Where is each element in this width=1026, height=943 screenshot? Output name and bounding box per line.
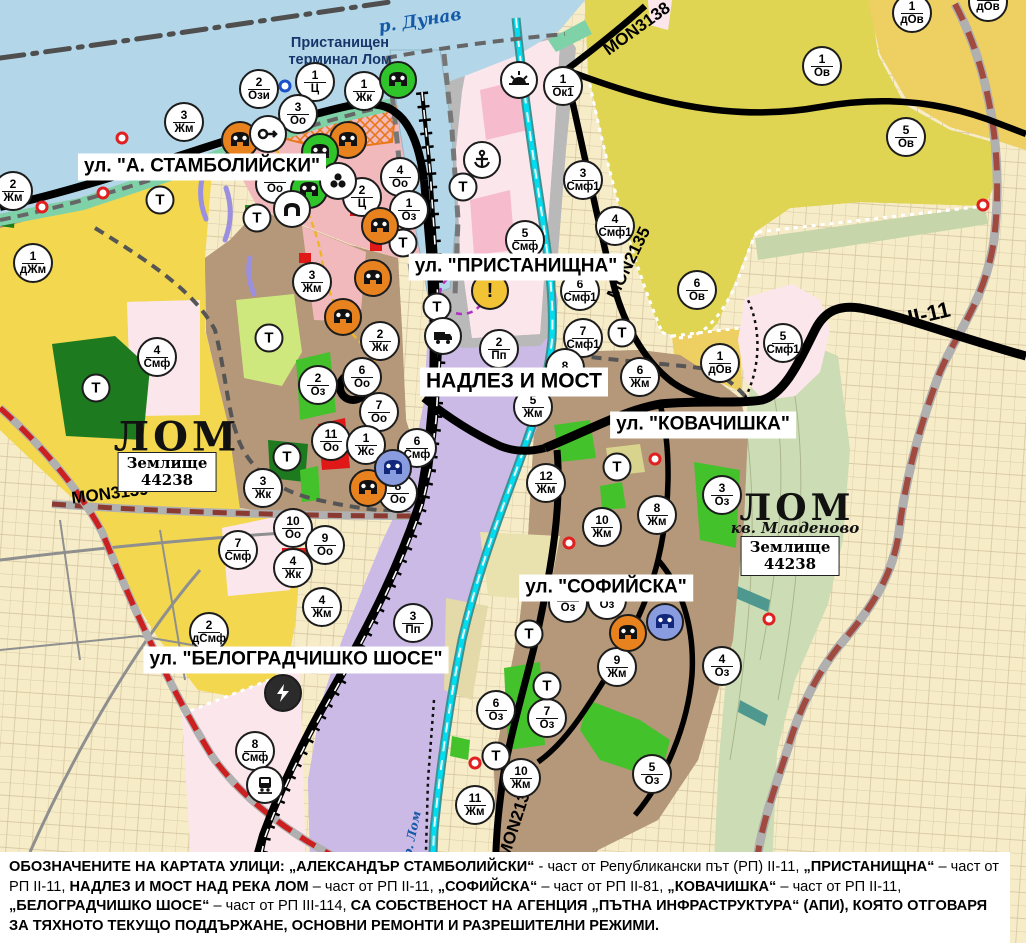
transport-zone-marker[interactable]: Т [146,186,175,215]
caption-segment: - част от Републикански път (РП) II-11, [534,859,803,875]
zone-marker-4-Оз[interactable]: 4Оз [702,646,742,686]
zone-marker-5-Ов[interactable]: 5Ов [886,117,926,157]
mask-orange-icon[interactable] [354,259,392,297]
transport-zone-marker[interactable]: Т [82,374,111,403]
mask-orange-icon[interactable] [361,207,399,245]
arch-icon[interactable] [273,190,311,228]
land-registry-box: Землище 44238 [741,536,840,576]
zone-marker-3-Оз[interactable]: 3Оз [702,475,742,515]
transport-zone-marker[interactable]: Т [608,319,637,348]
zone-marker-6-Оо[interactable]: 6Оо [342,357,382,397]
transport-zone-marker[interactable]: Т [533,672,562,701]
transport-zone-marker[interactable]: Т [255,324,284,353]
zone-marker-1-Ок1[interactable]: 1Ок1 [543,66,583,106]
zone-marker-2-Ози[interactable]: 2Ози [239,69,279,109]
caption-segment: НАДЛЕЗ И МОСТ НАД РЕКА ЛОМ [70,879,309,895]
zone-marker-10-Жм[interactable]: 10Жм [582,507,622,547]
map-caption: ОБОЗНАЧЕНИТЕ НА КАРТАТА УЛИЦИ: „АЛЕКСАНД… [0,852,1010,943]
street-label[interactable]: ул. "СОФИЙСКА" [519,575,693,602]
zone-marker-5-Смф1[interactable]: 5Смф1 [763,323,803,363]
zone-marker-1-Жк[interactable]: 1Жк [344,71,384,111]
street-label[interactable]: ул. "БЕЛОГРАДЧИШКО ШОСЕ" [144,647,449,674]
zone-marker-4-Смф1[interactable]: 4Смф1 [595,206,635,246]
red-dot-marker [116,132,129,145]
truck-icon[interactable] [424,317,462,355]
lightning-icon[interactable] [264,674,302,712]
zone-marker-4-Жм[interactable]: 4Жм [302,587,342,627]
zone-marker-1-дЖм[interactable]: 1дЖм [13,243,53,283]
street-label[interactable]: НАДЛЕЗ И МОСТ [420,368,608,397]
zone-marker-3-Жм[interactable]: 3Жм [292,262,332,302]
zone-marker-4-Жк[interactable]: 4Жк [273,548,313,588]
zone-marker-7-Смф[interactable]: 7Смф [218,530,258,570]
train-icon[interactable] [246,766,284,804]
caption-segment: – част от РП III-114, [209,898,350,914]
zone-marker-4-Смф[interactable]: 4Смф [137,337,177,377]
street-label[interactable]: ул. "А. СТАМБОЛИЙСКИ" [78,154,326,181]
street-label[interactable]: ул. "КОВАЧИШКА" [610,412,796,439]
zone-marker-3-Жм[interactable]: 3Жм [164,102,204,142]
mask-orange-icon[interactable] [324,298,362,336]
caption-segment: „КОВАЧИШКА“ [667,879,776,895]
zone-marker-6-Ов[interactable]: 6Ов [677,270,717,310]
zone-marker-6-Оз[interactable]: 6Оз [476,690,516,730]
red-dot-marker [36,201,49,214]
zone-marker-3-Пп[interactable]: 3Пп [393,603,433,643]
zone-marker-3-Смф1[interactable]: 3Смф1 [563,160,603,200]
transport-zone-marker[interactable]: Т [482,742,511,771]
zone-marker-11-Жм[interactable]: 11Жм [455,785,495,825]
anchor-icon[interactable] [463,141,501,179]
zone-marker-2-Пп[interactable]: 2Пп [479,329,519,369]
caption-segment: – част от РП II-11, [309,879,438,895]
zone-marker-7-Оз[interactable]: 7Оз [527,698,567,738]
zone-marker-8-Жм[interactable]: 8Жм [637,495,677,535]
zone-marker-1-Ов[interactable]: 1Ов [802,46,842,86]
zone-marker-12-Жм[interactable]: 12Жм [526,463,566,503]
transport-zone-marker[interactable]: Т [603,453,632,482]
transport-zone-marker[interactable]: Т [243,204,272,233]
mask-green-icon[interactable] [379,61,417,99]
zone-marker-1-дОв[interactable]: 1дОв [700,343,740,383]
red-dot-marker [469,757,482,770]
transport-zone-marker[interactable]: Т [515,620,544,649]
caption-segment: „ПРИСТАНИЩНА“ [803,859,934,875]
red-dot-marker [97,187,110,200]
blue-dot-marker [279,80,292,93]
mask-blue-icon[interactable] [646,603,684,641]
zone-marker-5-Оз[interactable]: 5Оз [632,754,672,794]
zone-marker-6-Жм[interactable]: 6Жм [620,357,660,397]
street-label[interactable]: ул. "ПРИСТАНИЩНА" [409,254,624,281]
caption-segment: – част от РП II-11, [776,879,901,895]
zone-marker-8-Смф[interactable]: 8Смф [235,731,275,771]
red-dot-marker [649,453,662,466]
caption-segment: – част от РП II-81, [537,879,667,895]
red-dot-marker [763,613,776,626]
sun-icon[interactable] [500,61,538,99]
zone-marker-2-Оз[interactable]: 2Оз [298,365,338,405]
caption-segment: „БЕЛОГРАДЧИШКО ШОСЕ“ [9,898,209,914]
quarter-name-label: кв. Младеново [731,519,860,537]
caption-segment: ОБОЗНАЧЕНИТЕ НА КАРТАТА УЛИЦИ: „АЛЕКСАНД… [9,859,534,875]
red-dot-marker [563,537,576,550]
mask-blue-icon[interactable] [374,449,412,487]
zone-marker-3-Жк[interactable]: 3Жк [243,468,283,508]
mask-orange-icon[interactable] [609,614,647,652]
zone-marker-9-Жм[interactable]: 9Жм [597,647,637,687]
zone-marker-11-Оо[interactable]: 11Оо [311,421,351,461]
key-icon[interactable] [249,115,287,153]
land-registry-box: Землище 44238 [118,452,217,492]
zone-marker-2-Жк[interactable]: 2Жк [360,321,400,361]
red-dot-marker [977,199,990,212]
caption-segment: „СОФИЙСКА“ [438,879,538,895]
transport-zone-marker[interactable]: Т [273,443,302,472]
map-screenshot: ул. "А. СТАМБОЛИЙСКИ"ул. "ПРИСТАНИЩНА"НА… [0,0,1026,943]
